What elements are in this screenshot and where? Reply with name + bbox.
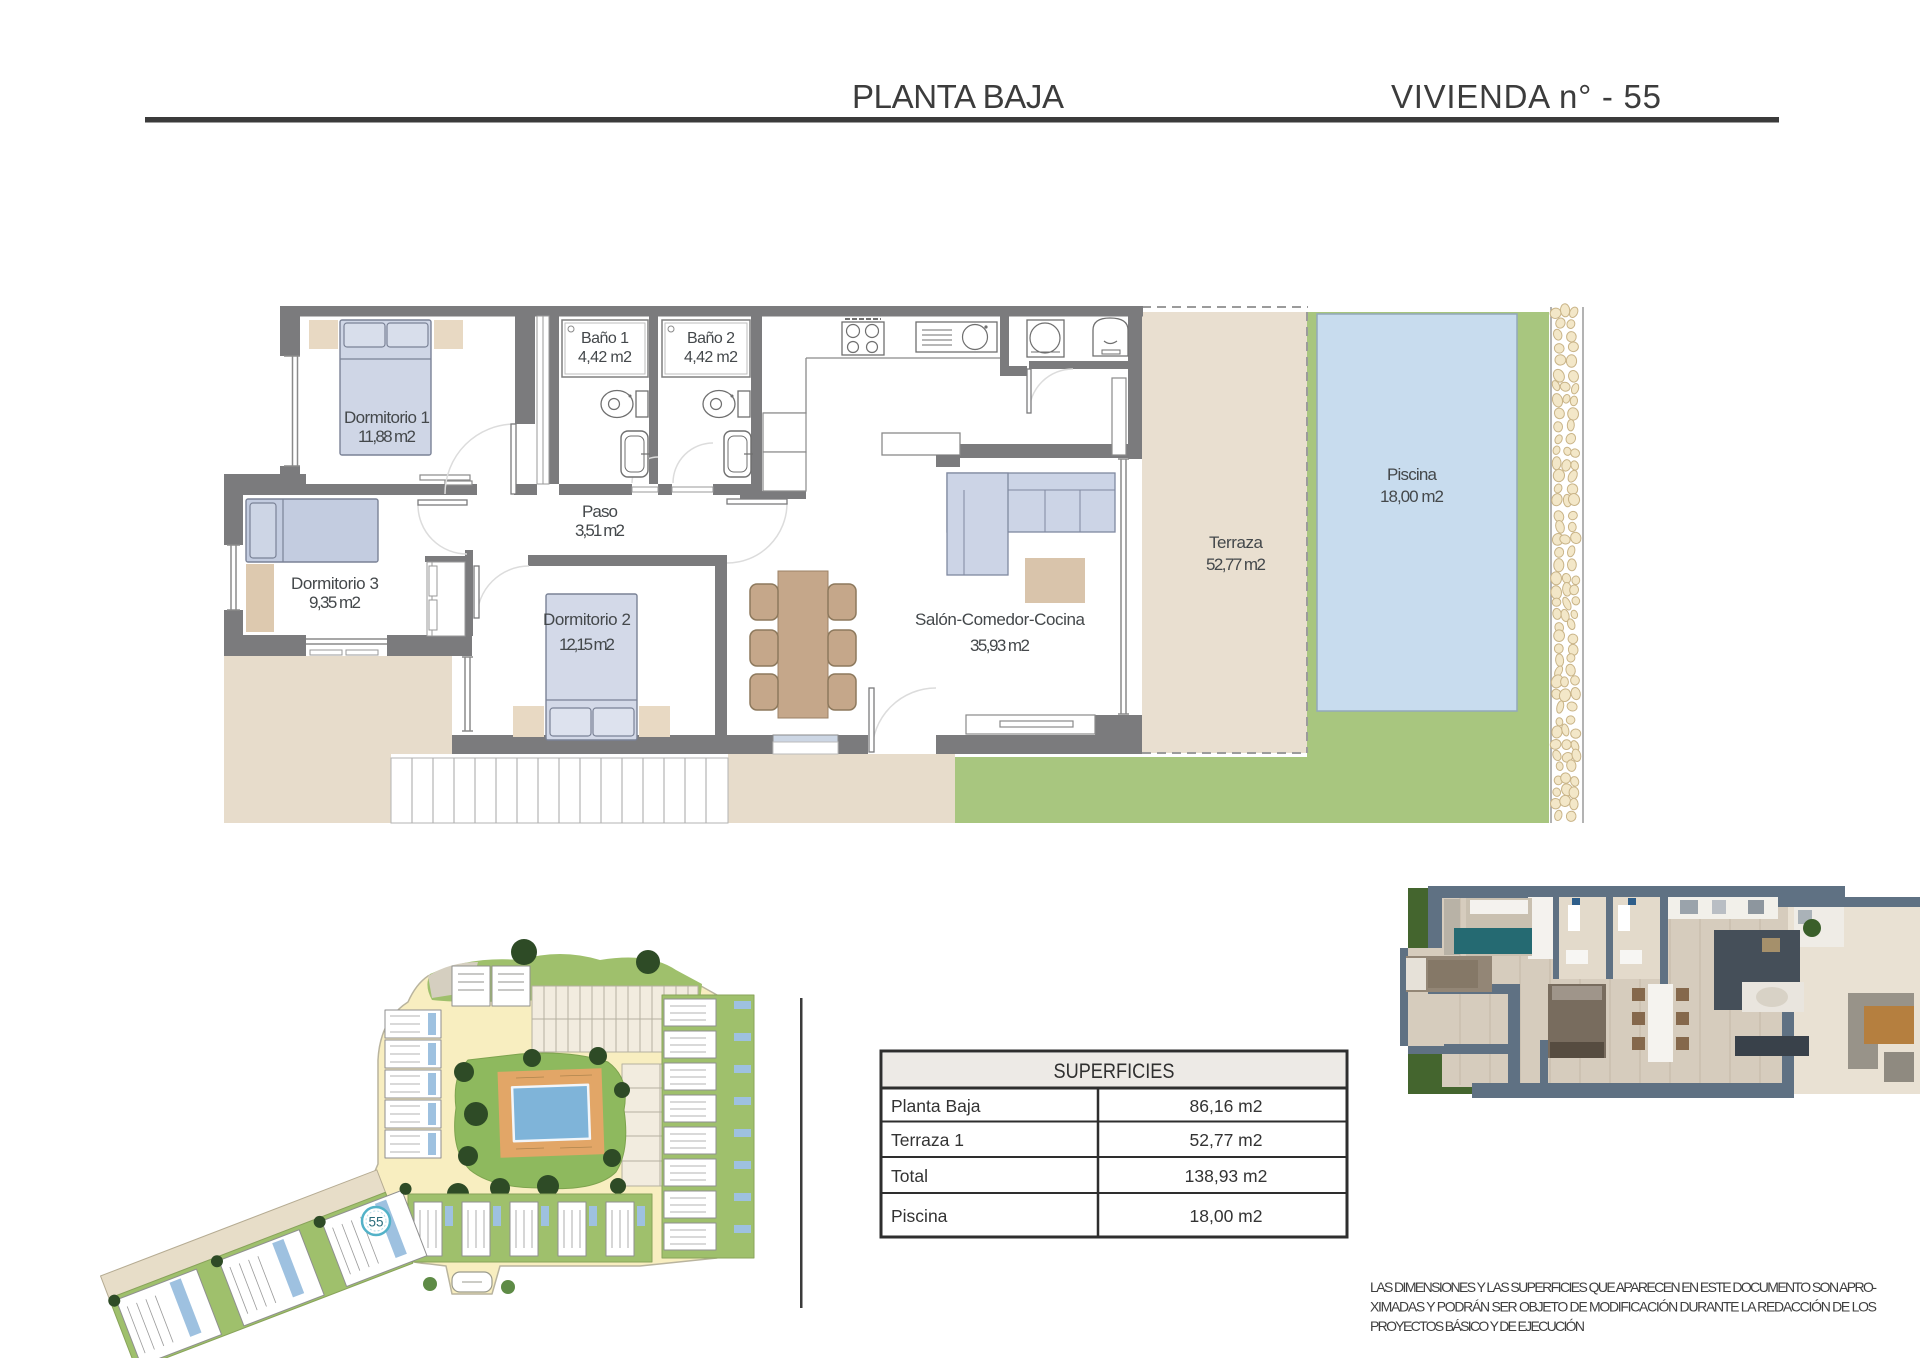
svg-text:11,88 m2: 11,88 m2: [358, 427, 416, 446]
svg-text:86,16 m2: 86,16 m2: [1190, 1096, 1263, 1116]
svg-text:Dormitorio 1: Dormitorio 1: [344, 408, 430, 427]
svg-text:Planta Baja: Planta Baja: [891, 1096, 981, 1116]
svg-text:4,42 m2: 4,42 m2: [684, 349, 738, 366]
svg-text:52,77 m2: 52,77 m2: [1190, 1130, 1263, 1150]
svg-text:LAS DIMENSIONES Y LAS SUPERFIC: LAS DIMENSIONES Y LAS SUPERFICIES QUE AP…: [1370, 1279, 1877, 1295]
svg-text:XIMADAS Y PODRÁN SER OBJETO DE: XIMADAS Y PODRÁN SER OBJETO DE MODIFICAC…: [1370, 1299, 1877, 1315]
svg-text:Piscina: Piscina: [891, 1206, 948, 1226]
svg-text:3,51 m2: 3,51 m2: [575, 521, 625, 540]
svg-text:Baño 1: Baño 1: [581, 330, 629, 347]
svg-text:18,00 m2: 18,00 m2: [1190, 1206, 1263, 1226]
svg-text:Total: Total: [891, 1166, 928, 1186]
svg-text:12,15 m2: 12,15 m2: [559, 635, 615, 654]
svg-text:Salón-Comedor-Cocina: Salón-Comedor-Cocina: [915, 610, 1086, 629]
svg-text:4,42 m2: 4,42 m2: [578, 349, 632, 366]
svg-text:PROYECTOS BÁSICO Y DE EJECUCIÓ: PROYECTOS BÁSICO Y DE EJECUCIÓN: [1370, 1318, 1585, 1334]
svg-text:52,77 m2: 52,77 m2: [1206, 555, 1266, 574]
svg-text:Dormitorio 2: Dormitorio 2: [543, 610, 631, 629]
svg-text:138,93 m2: 138,93 m2: [1185, 1166, 1268, 1186]
svg-text:PLANTA BAJA: PLANTA BAJA: [852, 78, 1067, 115]
svg-text:18,00 m2: 18,00 m2: [1380, 487, 1444, 506]
svg-text:SUPERFICIES: SUPERFICIES: [1054, 1059, 1175, 1083]
svg-text:Piscina: Piscina: [1387, 465, 1438, 484]
svg-text:35,93 m2: 35,93 m2: [970, 636, 1030, 655]
svg-text:Baño 2: Baño 2: [687, 330, 735, 347]
svg-text:VIVIENDA n° - 55: VIVIENDA n° - 55: [1391, 78, 1663, 115]
svg-text:Terraza 1: Terraza 1: [891, 1130, 964, 1150]
svg-text:9,35 m2: 9,35 m2: [309, 593, 361, 612]
svg-text:55: 55: [368, 1215, 383, 1230]
svg-text:Paso: Paso: [582, 502, 618, 521]
svg-text:Dormitorio 3: Dormitorio 3: [291, 574, 379, 593]
svg-text:Terraza: Terraza: [1209, 533, 1264, 552]
